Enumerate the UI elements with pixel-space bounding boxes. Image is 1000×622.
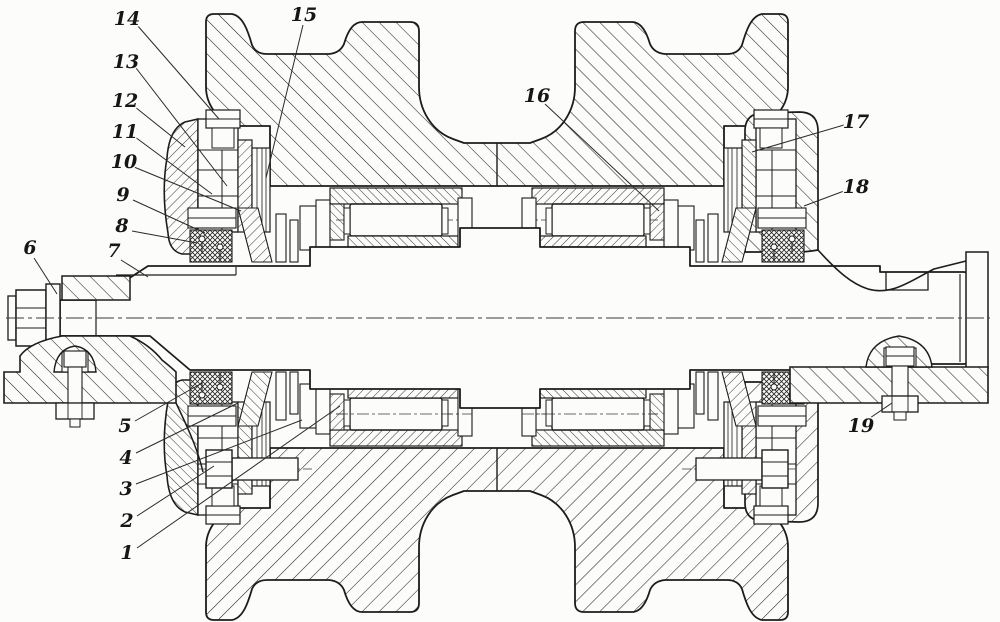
callout-label-3: 3 [119,478,132,500]
callout-label-16: 16 [524,85,550,107]
roller-assembly-drawing: 1 2 3 4 5 6 7 8 9 10 11 12 13 14 15 16 1… [0,0,1000,622]
technical-drawing-canvas: 1 2 3 4 5 6 7 8 9 10 11 12 13 14 15 16 1… [0,0,1000,622]
callout-label-8: 8 [114,215,128,237]
callout-label-15: 15 [291,4,317,26]
callout-label-10: 10 [111,151,137,173]
callout-label-1: 1 [120,542,133,564]
base-bolt-nut [882,396,918,412]
base-bolt-head [886,347,914,366]
bracket-hub-upper [62,276,130,300]
foot-bolt-nut [56,403,94,419]
foot-bolt-head [64,351,86,367]
callout-label-6: 6 [23,237,36,259]
callout-label-2: 2 [119,510,133,532]
callout-label-11: 11 [112,121,138,143]
callout-label-19: 19 [848,415,874,437]
callout-label-7: 7 [107,240,120,262]
callout-label-4: 4 [119,447,132,469]
callout-label-13: 13 [113,51,139,73]
foot-bolt-shank [68,367,82,403]
callout-label-12: 12 [112,90,138,112]
bracket-end-plate [966,252,988,368]
callout-label-18: 18 [843,176,869,198]
callout-label-5: 5 [118,415,131,437]
callout-label-14: 14 [114,8,140,30]
callout-label-9: 9 [116,184,129,206]
base-bolt-shank [892,366,908,396]
callout-label-17: 17 [843,111,869,133]
